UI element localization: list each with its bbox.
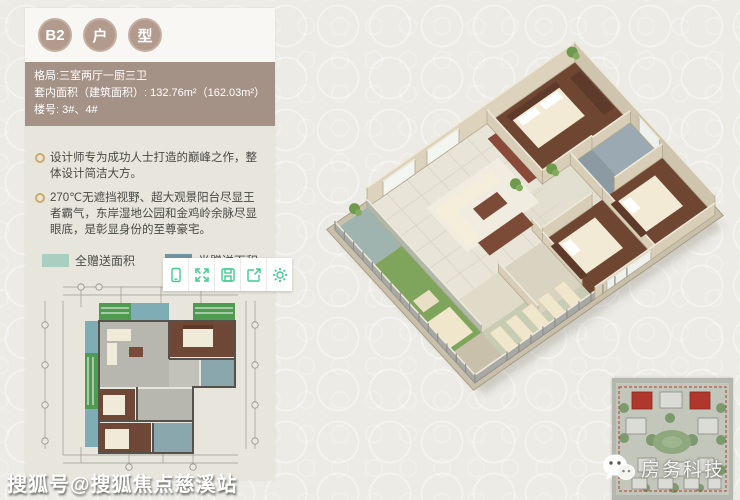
- wechat-brand-watermark: 房务科技: [601, 452, 725, 484]
- selling-point: 270℃无遮挡视野、超大观景阳台尽显王者霸气，东岸湿地公园和金鸡岭余脉尽显眼底，…: [35, 190, 263, 238]
- unit-layout-line: 格局:三室两厅一厨三卫: [34, 68, 266, 85]
- floorplan-2d: [33, 277, 267, 473]
- rotate-device-icon[interactable]: [163, 258, 188, 291]
- flower-bullet-icon: [35, 193, 45, 203]
- selling-point: 设计师专为成功人士打造的巅峰之作，整体设计简洁大方。: [35, 150, 263, 182]
- sohu-watermark: 搜狐号@搜狐焦点慈溪站: [7, 468, 238, 497]
- wechat-icon: [601, 452, 637, 484]
- selling-points: 设计师专为成功人士打造的巅峰之作，整体设计简洁大方。 270℃无遮挡视野、超大观…: [25, 150, 275, 238]
- save-icon[interactable]: [214, 258, 240, 291]
- legend-full-gift-label: 全赠送面积: [75, 252, 135, 269]
- unit-building-line: 楼号: 3#、4#: [34, 102, 266, 119]
- settings-icon[interactable]: [266, 258, 292, 291]
- unit-badge-xing: 型: [128, 18, 162, 52]
- viewer-toolbar: [163, 258, 292, 291]
- page: B2 户 型 格局:三室两厅一厨三卫 套内面积（建筑面积）: 132.76m²（…: [0, 0, 740, 500]
- unit-info-panel: B2 户 型 格局:三室两厅一厨三卫 套内面积（建筑面积）: 132.76m²（…: [25, 8, 275, 480]
- selling-point-text: 270℃无遮挡视野、超大观景阳台尽显王者霸气，东岸湿地公园和金鸡岭余脉尽显眼底，…: [50, 190, 263, 238]
- legend-full-gift-swatch: [42, 254, 69, 267]
- wechat-brand-text: 房务科技: [641, 455, 725, 482]
- floorplan-3d-view[interactable]: [295, 0, 740, 400]
- unit-facts: 格局:三室两厅一厨三卫 套内面积（建筑面积）: 132.76m²（162.03m…: [25, 62, 275, 126]
- unit-description: 设计师专为成功人士打造的巅峰之作，整体设计简洁大方。 270℃无遮挡视野、超大观…: [25, 126, 275, 480]
- share-icon[interactable]: [240, 258, 266, 291]
- unit-badge-hu: 户: [83, 18, 117, 52]
- unit-badge-b2: B2: [38, 18, 72, 52]
- legend-full-gift: 全赠送面积: [42, 252, 135, 269]
- fullscreen-icon[interactable]: [188, 258, 214, 291]
- unit-area-line: 套内面积（建筑面积）: 132.76m²（162.03m²）: [34, 85, 266, 102]
- unit-title: B2 户 型: [25, 8, 275, 62]
- flower-bullet-icon: [35, 153, 45, 163]
- floorplan-3d-render: [295, 0, 740, 400]
- selling-point-text: 设计师专为成功人士打造的巅峰之作，整体设计简洁大方。: [50, 150, 263, 182]
